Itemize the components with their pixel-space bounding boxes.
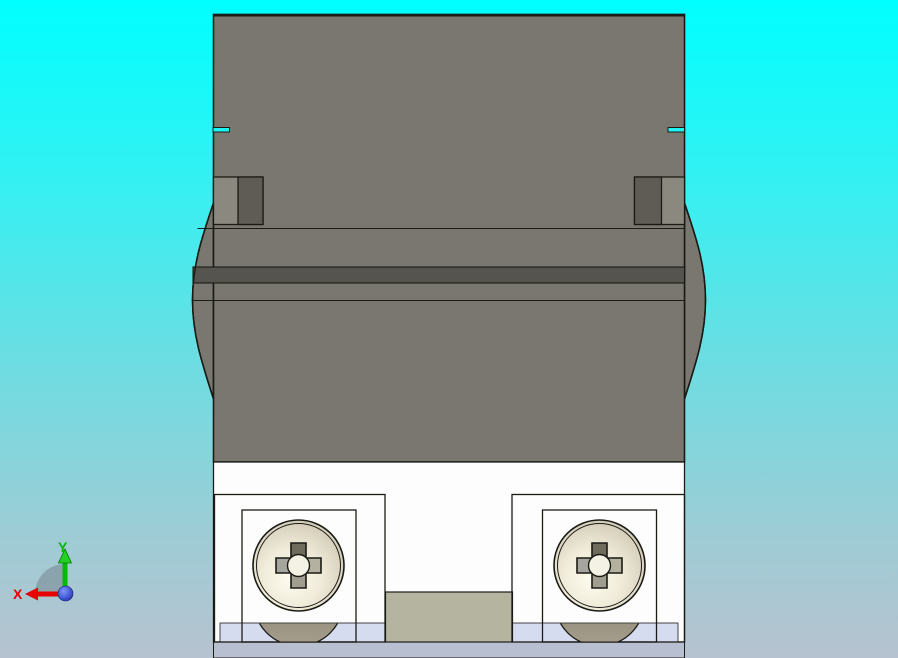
left-cross-center <box>288 555 310 577</box>
cad-viewport[interactable]: X Y <box>0 0 898 658</box>
left-slot <box>213 128 230 133</box>
left-clamp-block <box>214 177 264 225</box>
center-spacer-block <box>386 592 513 642</box>
dark-groove-stripe <box>193 267 685 283</box>
phillips-screw-right <box>554 520 645 646</box>
part-body <box>214 15 685 463</box>
orientation-triad: X Y <box>13 539 73 602</box>
cad-canvas: X Y <box>0 0 898 658</box>
right-clamp-dark <box>635 177 662 225</box>
right-cross-center <box>589 555 611 577</box>
z-axis-ball <box>58 586 73 601</box>
y-axis-label: Y <box>58 539 68 555</box>
right-bulge <box>685 203 706 399</box>
bottom-rail <box>214 642 685 658</box>
cad-part <box>193 15 706 658</box>
left-clamp-dark <box>238 177 263 225</box>
right-slot <box>668 128 685 133</box>
x-axis-label: X <box>13 586 23 602</box>
phillips-screw-left <box>253 520 344 646</box>
right-clamp-block <box>635 177 685 225</box>
